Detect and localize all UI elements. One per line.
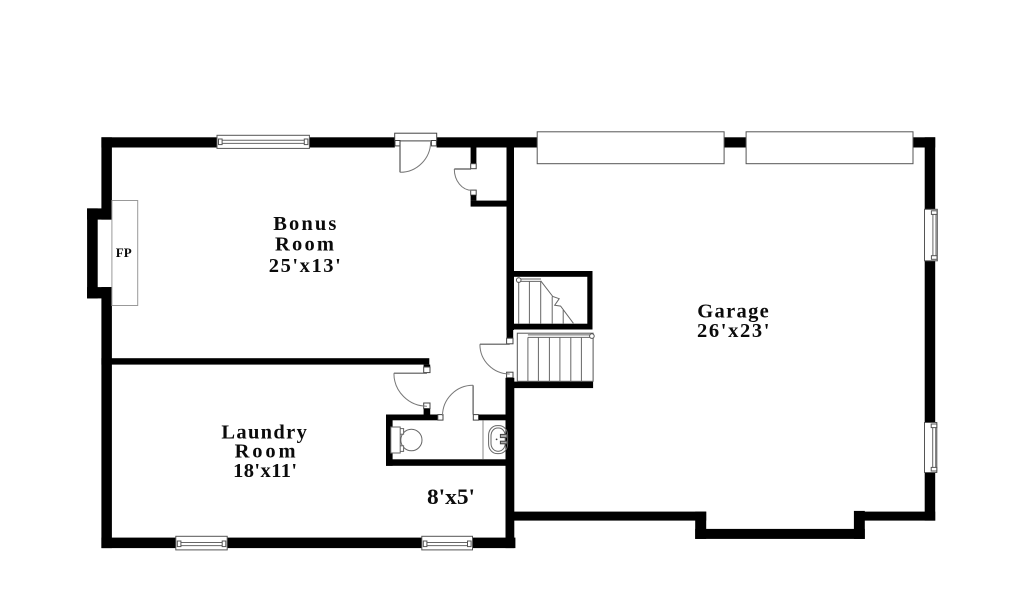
svg-text:18'x11': 18'x11': [233, 460, 297, 482]
svg-text:8'x5': 8'x5': [427, 484, 475, 509]
svg-text:Garage: Garage: [697, 301, 769, 323]
svg-text:FP: FP: [116, 245, 132, 260]
svg-text:Room: Room: [275, 233, 334, 255]
